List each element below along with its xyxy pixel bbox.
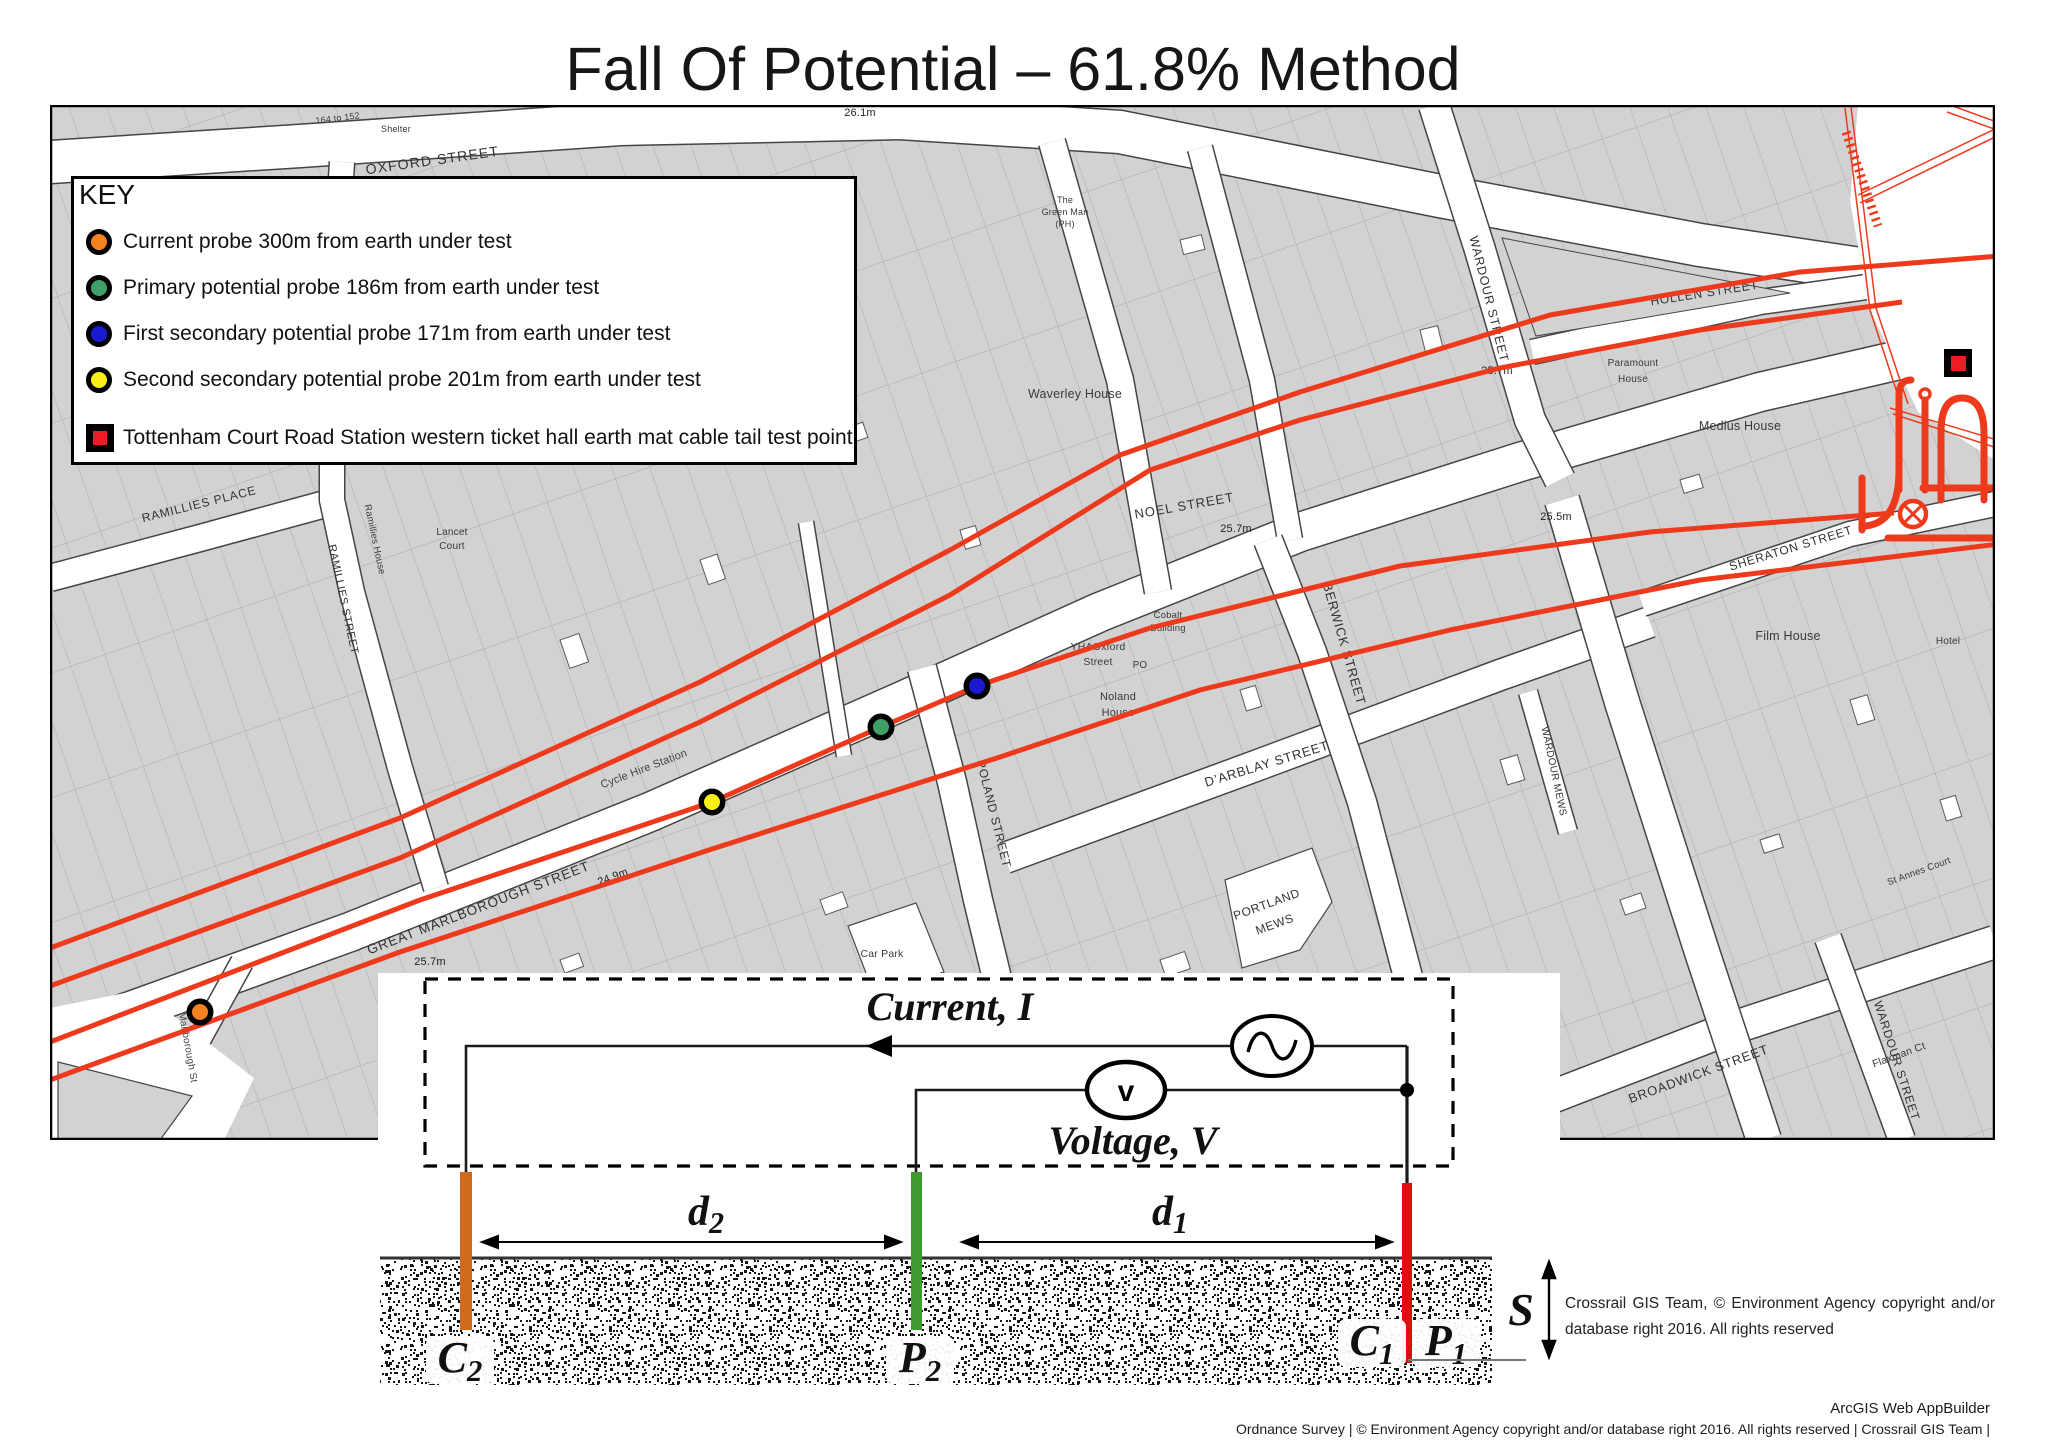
svg-text:House: House xyxy=(1618,374,1648,385)
svg-text:Noland: Noland xyxy=(1100,691,1136,703)
svg-text:S: S xyxy=(1508,1284,1534,1335)
svg-text:Shelter: Shelter xyxy=(381,124,411,134)
svg-text:Court: Court xyxy=(439,541,464,552)
svg-text:Medius House: Medius House xyxy=(1699,419,1781,433)
svg-text:d1: d1 xyxy=(1152,1189,1188,1240)
svg-text:The: The xyxy=(1057,195,1073,205)
svg-text:Current, I: Current, I xyxy=(867,984,1035,1029)
svg-text:PO: PO xyxy=(1133,660,1148,671)
svg-text:25.7m: 25.7m xyxy=(1220,523,1252,535)
svg-text:25.5m: 25.5m xyxy=(1540,511,1572,523)
svg-text:Car Park: Car Park xyxy=(860,948,904,960)
svg-text:26.1m: 26.1m xyxy=(844,107,876,119)
svg-text:d2: d2 xyxy=(688,1189,724,1240)
svg-text:Paramount: Paramount xyxy=(1608,358,1659,369)
svg-text:Lancet: Lancet xyxy=(436,527,467,538)
svg-text:Voltage, V: Voltage, V xyxy=(1049,1118,1221,1163)
svg-text:Waverley House: Waverley House xyxy=(1028,387,1122,401)
svg-text:Street: Street xyxy=(1083,656,1112,668)
svg-text:v: v xyxy=(1118,1075,1135,1108)
svg-text:Film House: Film House xyxy=(1755,629,1820,643)
svg-text:(PH): (PH) xyxy=(1055,219,1074,229)
svg-text:Green Man: Green Man xyxy=(1042,207,1089,217)
svg-text:Hotel: Hotel xyxy=(1936,636,1960,647)
